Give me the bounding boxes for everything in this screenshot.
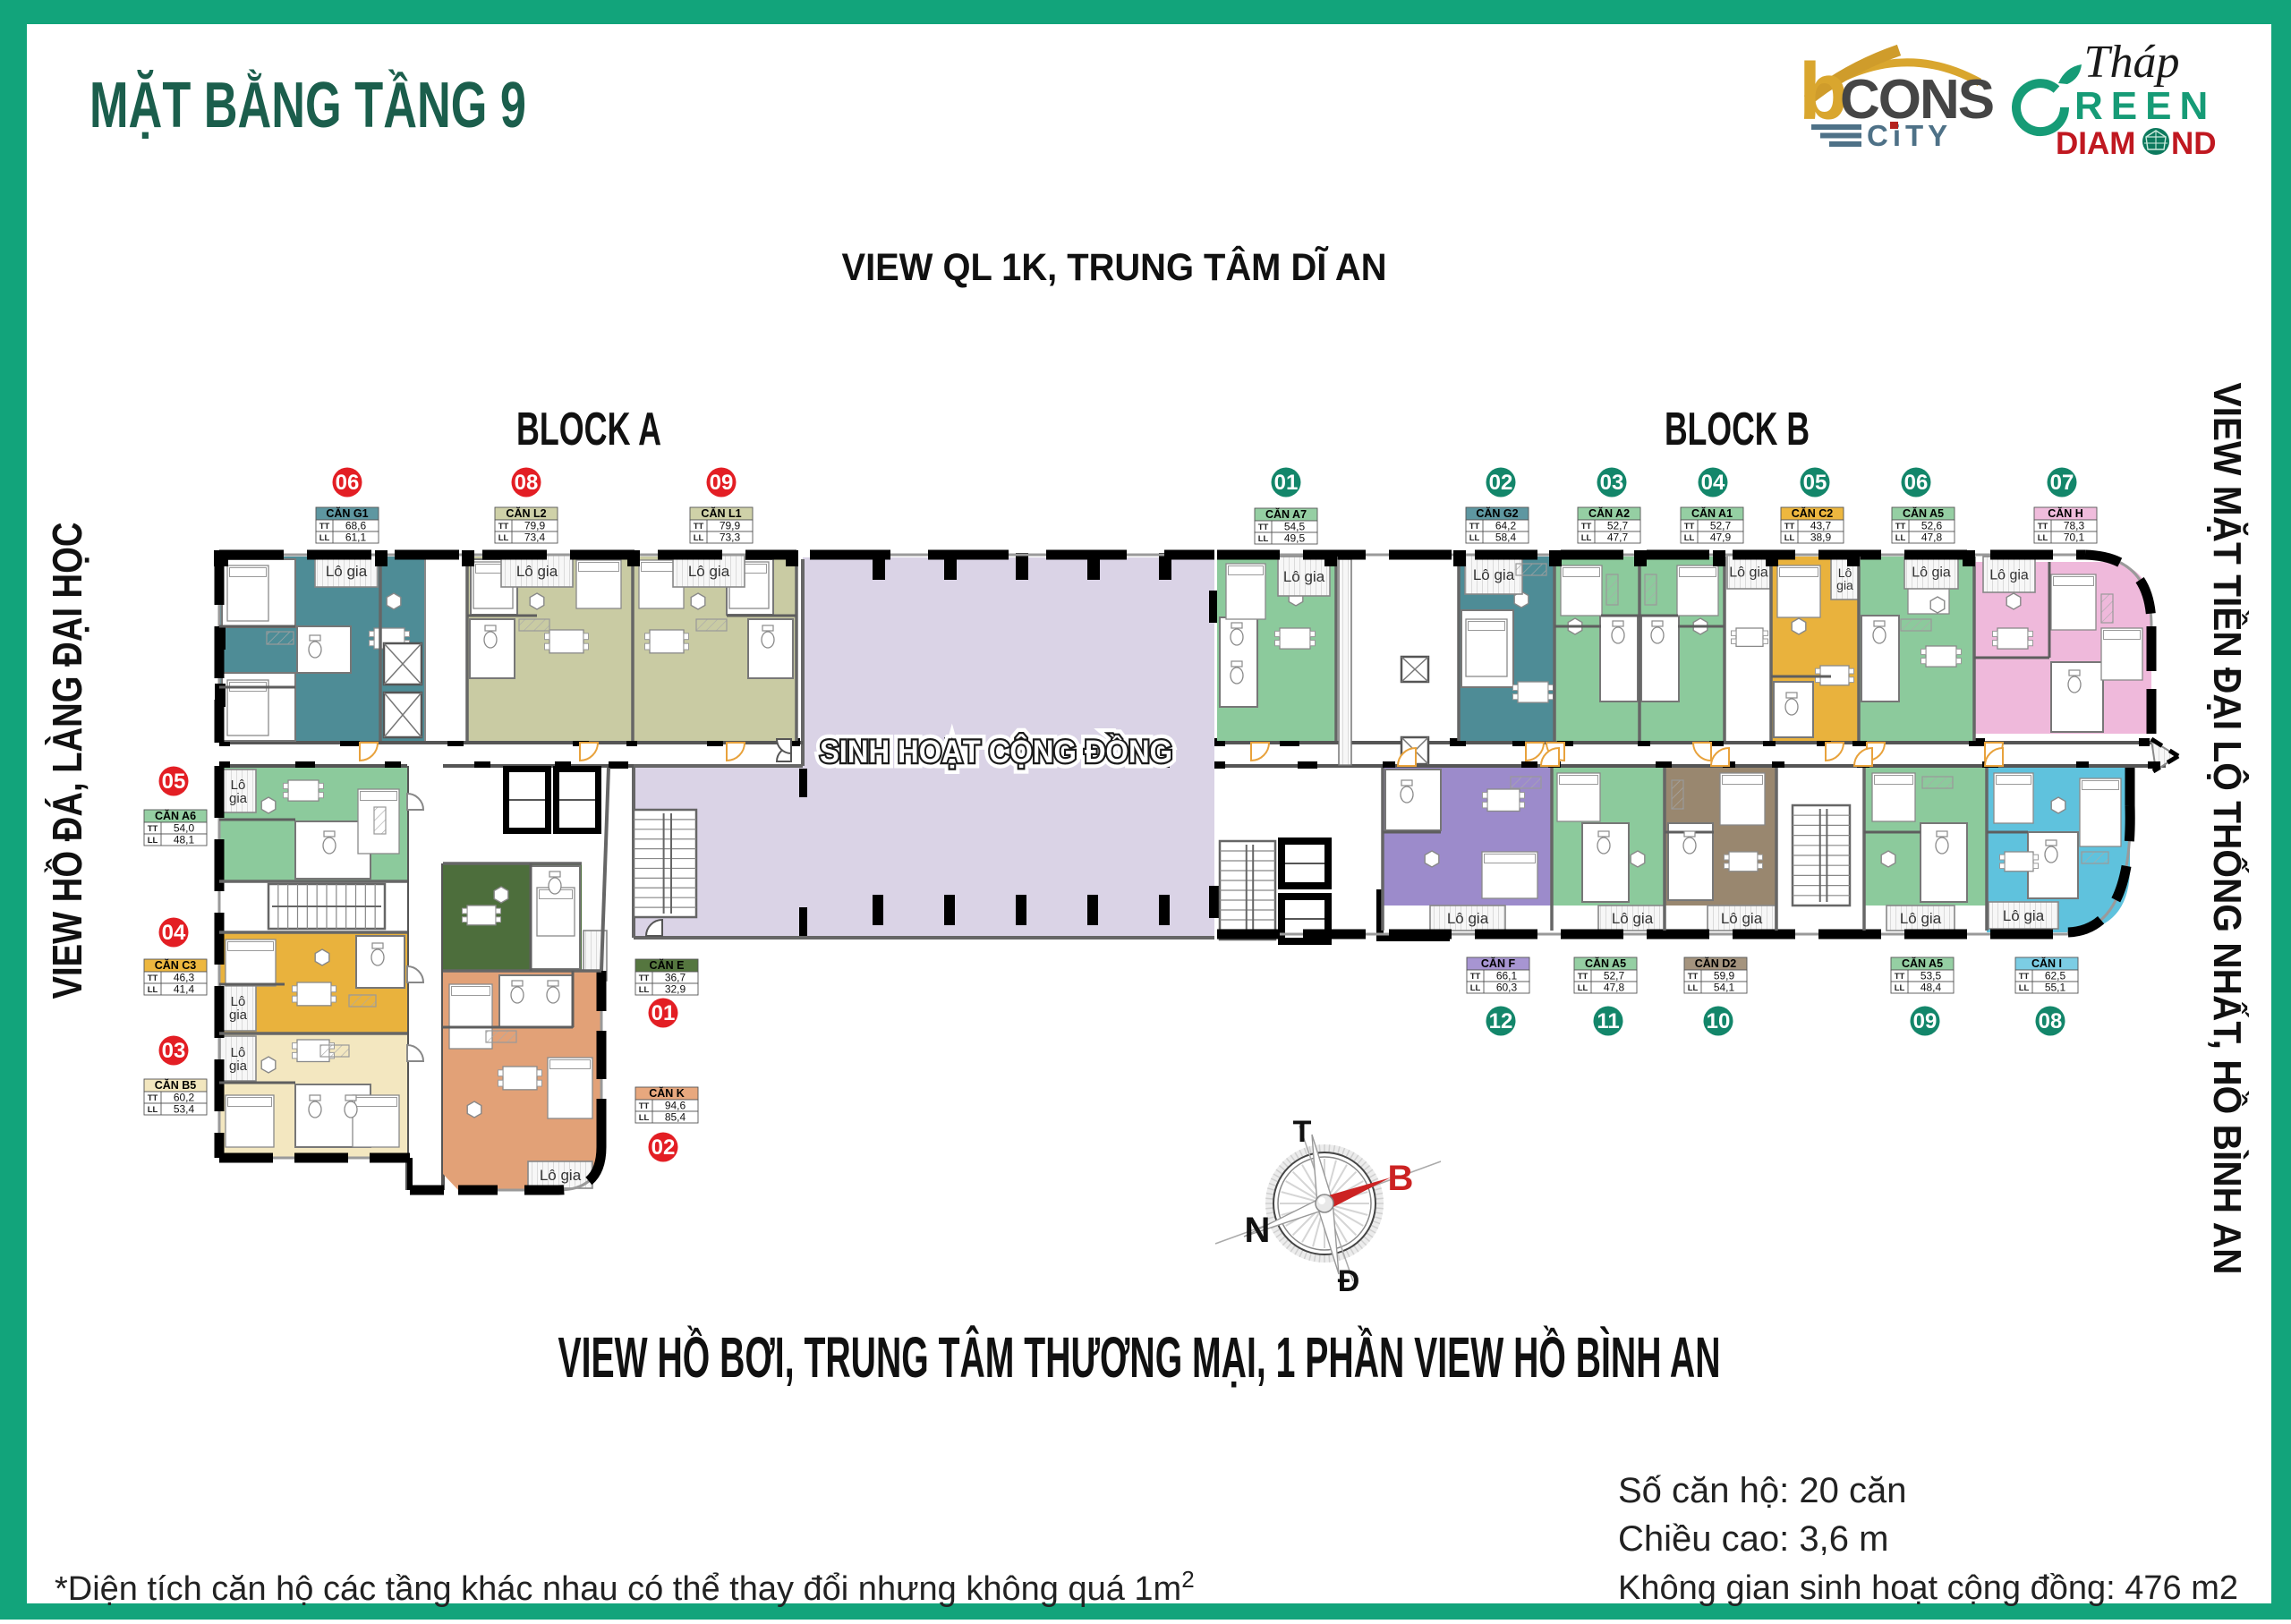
svg-text:10: 10 <box>1707 1009 1731 1033</box>
svg-text:TT: TT <box>148 824 158 834</box>
svg-text:Lôgia: Lôgia <box>229 778 248 806</box>
svg-text:CĂN L2: CĂN L2 <box>506 506 546 520</box>
svg-text:LL: LL <box>498 533 509 543</box>
svg-text:TT: TT <box>2019 972 2030 982</box>
svg-text:LL: LL <box>1469 533 1480 543</box>
svg-text:55,1: 55,1 <box>2045 982 2066 994</box>
svg-text:TT: TT <box>1578 972 1588 982</box>
svg-text:73,4: 73,4 <box>524 531 546 544</box>
svg-text:CĂN A5: CĂN A5 <box>1903 506 1944 520</box>
svg-text:59,9: 59,9 <box>1714 970 1735 982</box>
svg-text:BLOCK B: BLOCK B <box>1665 404 1810 455</box>
svg-text:79,9: 79,9 <box>524 520 546 532</box>
svg-text:54,0: 54,0 <box>174 822 195 835</box>
svg-text:TT: TT <box>2038 522 2048 531</box>
svg-text:08: 08 <box>2039 1009 2063 1033</box>
svg-text:CĂN L1: CĂN L1 <box>701 506 741 520</box>
svg-text:03: 03 <box>162 1039 186 1063</box>
svg-text:08: 08 <box>515 471 539 495</box>
svg-text:CĂN E: CĂN E <box>650 958 685 972</box>
svg-text:47,7: 47,7 <box>1607 531 1629 544</box>
svg-text:52,7: 52,7 <box>1607 520 1629 532</box>
svg-text:Lô gia: Lô gia <box>688 563 730 580</box>
svg-text:LL: LL <box>2019 983 2030 993</box>
svg-text:LL: LL <box>639 1113 650 1123</box>
svg-text:Tháp: Tháp <box>2084 37 2180 88</box>
svg-text:CĂN D2: CĂN D2 <box>1695 957 1737 970</box>
svg-text:05: 05 <box>162 769 186 794</box>
svg-text:43,7: 43,7 <box>1810 520 1832 532</box>
svg-text:07: 07 <box>2050 471 2074 495</box>
svg-text:CĂN C2: CĂN C2 <box>1792 506 1834 520</box>
svg-text:MẶT BẰNG TẦNG 9: MẶT BẰNG TẦNG 9 <box>89 69 526 141</box>
svg-text:52,7: 52,7 <box>1710 520 1732 532</box>
svg-text:TT: TT <box>148 1093 158 1103</box>
svg-text:LL: LL <box>148 985 158 995</box>
svg-text:TT: TT <box>148 974 158 983</box>
svg-text:LL: LL <box>148 1105 158 1115</box>
svg-text:Lôgia: Lôgia <box>229 994 248 1023</box>
svg-text:TT: TT <box>498 522 509 531</box>
svg-text:54,1: 54,1 <box>1714 982 1735 994</box>
svg-text:CĂN A5: CĂN A5 <box>1902 957 1943 970</box>
svg-text:Lô gia: Lô gia <box>1729 565 1768 581</box>
svg-text:TT: TT <box>694 522 704 531</box>
svg-text:B: B <box>1388 1159 1414 1198</box>
svg-text:12: 12 <box>1489 1009 1513 1033</box>
svg-text:78,3: 78,3 <box>2064 520 2085 532</box>
svg-text:60,3: 60,3 <box>1496 982 1518 994</box>
svg-text:Chiều cao: 3,6 m: Chiều cao: 3,6 m <box>1618 1519 1888 1559</box>
svg-text:49,5: 49,5 <box>1284 532 1306 545</box>
svg-text:Không gian sinh hoạt cộng đồng: Không gian sinh hoạt cộng đồng: 476 m2 <box>1618 1569 2238 1607</box>
svg-text:53,4: 53,4 <box>174 1103 195 1116</box>
svg-text:85,4: 85,4 <box>665 1111 686 1124</box>
svg-text:BLOCK A: BLOCK A <box>516 404 661 455</box>
svg-text:LL: LL <box>639 985 650 995</box>
svg-text:CĂN A6: CĂN A6 <box>155 809 196 822</box>
svg-text:53,5: 53,5 <box>1921 970 1942 982</box>
svg-text:TT: TT <box>1258 523 1269 532</box>
svg-text:47,8: 47,8 <box>1604 982 1625 994</box>
svg-text:73,3: 73,3 <box>720 531 741 544</box>
svg-text:Lô gia: Lô gia <box>1721 910 1763 927</box>
svg-text:TT: TT <box>639 1101 650 1111</box>
svg-text:LL: LL <box>1895 533 1906 543</box>
svg-text:36,7: 36,7 <box>665 972 686 984</box>
svg-text:CĂN A2: CĂN A2 <box>1588 506 1630 520</box>
svg-text:06: 06 <box>1904 471 1929 495</box>
svg-text:Lô gia: Lô gia <box>1447 910 1489 927</box>
svg-text:REEN: REEN <box>2074 84 2216 128</box>
svg-text:64,2: 64,2 <box>1495 520 1517 532</box>
svg-text:T: T <box>1293 1115 1312 1149</box>
svg-text:Số căn hộ: 20 căn: Số căn hộ: 20 căn <box>1618 1471 1906 1510</box>
svg-text:Lô gia: Lô gia <box>516 563 558 580</box>
svg-text:CĂN A7: CĂN A7 <box>1265 507 1307 521</box>
svg-text:VIEW MẶT TIỀN ĐẠI LỘ THỐNG NHẤ: VIEW MẶT TIỀN ĐẠI LỘ THỐNG NHẤT, HỒ BÌNH… <box>2205 383 2251 1275</box>
svg-text:79,9: 79,9 <box>720 520 741 532</box>
svg-text:TT: TT <box>1581 522 1592 531</box>
svg-text:LL: LL <box>1581 533 1592 543</box>
svg-text:LL: LL <box>1895 983 1905 993</box>
svg-text:01: 01 <box>1274 471 1299 495</box>
svg-text:CĂN B5: CĂN B5 <box>155 1078 197 1092</box>
svg-text:04: 04 <box>162 921 186 945</box>
svg-text:Lô gia: Lô gia <box>326 563 368 580</box>
svg-text:TT: TT <box>1684 522 1695 531</box>
svg-text:06: 06 <box>336 471 360 495</box>
svg-text:68,6: 68,6 <box>345 520 367 532</box>
svg-text:47,8: 47,8 <box>1921 531 1943 544</box>
svg-text:LL: LL <box>2038 533 2048 543</box>
svg-text:TT: TT <box>1470 972 1481 982</box>
svg-text:02: 02 <box>652 1135 676 1160</box>
svg-text:60,2: 60,2 <box>174 1092 195 1104</box>
svg-text:Lô gia: Lô gia <box>1912 565 1951 581</box>
svg-text:41,4: 41,4 <box>174 983 195 996</box>
svg-text:TT: TT <box>1688 972 1699 982</box>
svg-text:Lô gia: Lô gia <box>540 1167 582 1184</box>
svg-text:38,9: 38,9 <box>1810 531 1832 544</box>
svg-text:Lô gia: Lô gia <box>2003 907 2045 924</box>
svg-text:Đ: Đ <box>1338 1264 1360 1298</box>
svg-text:Lô gia: Lô gia <box>1473 566 1515 583</box>
svg-text:LL: LL <box>694 533 704 543</box>
svg-text:62,5: 62,5 <box>2045 970 2066 982</box>
svg-text:94,6: 94,6 <box>665 1100 686 1112</box>
svg-text:*Diện tích căn hộ các tầng khá: *Diện tích căn hộ các tầng khác nhau có … <box>55 1566 1195 1608</box>
svg-text:04: 04 <box>1701 471 1725 495</box>
svg-text:TT: TT <box>319 522 330 531</box>
svg-text:LL: LL <box>1688 983 1699 993</box>
svg-text:01: 01 <box>652 1001 676 1025</box>
svg-text:61,1: 61,1 <box>345 531 367 544</box>
svg-text:CĂN F: CĂN F <box>1481 957 1516 970</box>
svg-text:47,9: 47,9 <box>1710 531 1732 544</box>
svg-text:CĂN K: CĂN K <box>649 1086 685 1100</box>
svg-text:09: 09 <box>710 471 734 495</box>
svg-text:TT: TT <box>1895 522 1906 531</box>
svg-text:Lô gia: Lô gia <box>1612 910 1654 927</box>
svg-text:CĂN A5: CĂN A5 <box>1585 957 1626 970</box>
svg-text:CiTY: CiTY <box>1867 119 1952 152</box>
svg-text:11: 11 <box>1597 1009 1619 1033</box>
svg-text:VIEW QL 1K, TRUNG TÂM DĨ AN: VIEW QL 1K, TRUNG TÂM DĨ AN <box>842 245 1387 289</box>
svg-text:CĂN G2: CĂN G2 <box>1476 506 1518 520</box>
svg-text:LL: LL <box>148 836 158 846</box>
svg-text:VIEW HỒ ĐÁ, LÀNG ĐẠI HỌC: VIEW HỒ ĐÁ, LÀNG ĐẠI HỌC <box>44 523 90 999</box>
svg-text:LL: LL <box>1684 533 1695 543</box>
svg-text:05: 05 <box>1803 471 1827 495</box>
svg-text:LL: LL <box>1784 533 1795 543</box>
svg-text:66,1: 66,1 <box>1496 970 1518 982</box>
svg-text:Lô gia: Lô gia <box>1989 568 2029 583</box>
svg-text:VIEW HỒ BƠI, TRUNG TÂM THƯƠNG: VIEW HỒ BƠI, TRUNG TÂM THƯƠNG MẠI, 1 PHẦ… <box>558 1324 1721 1390</box>
svg-text:TT: TT <box>1469 522 1480 531</box>
svg-text:CĂN G1: CĂN G1 <box>326 506 368 520</box>
svg-text:ND: ND <box>2171 126 2217 161</box>
svg-text:46,3: 46,3 <box>174 972 195 984</box>
svg-text:Lô gia: Lô gia <box>1283 568 1325 585</box>
svg-text:09: 09 <box>1913 1009 1938 1033</box>
svg-text:58,4: 58,4 <box>1495 531 1517 544</box>
svg-text:Lô gia: Lô gia <box>1900 910 1942 927</box>
svg-text:CĂN A1: CĂN A1 <box>1691 506 1733 520</box>
svg-text:DIAM: DIAM <box>2056 126 2135 161</box>
svg-text:48,4: 48,4 <box>1921 982 1942 994</box>
svg-text:TT: TT <box>1895 972 1905 982</box>
svg-text:CĂN I: CĂN I <box>2031 957 2062 970</box>
svg-text:LL: LL <box>1578 983 1588 993</box>
svg-text:48,1: 48,1 <box>174 834 195 846</box>
svg-text:TT: TT <box>639 974 650 983</box>
svg-text:54,5: 54,5 <box>1284 521 1306 533</box>
svg-text:CĂN C3: CĂN C3 <box>155 958 197 972</box>
svg-text:gia: gia <box>1836 578 1853 592</box>
svg-text:CĂN H: CĂN H <box>2048 506 2083 520</box>
svg-text:N: N <box>1245 1211 1271 1250</box>
svg-text:LL: LL <box>1258 534 1269 544</box>
svg-text:70,1: 70,1 <box>2064 531 2085 544</box>
svg-text:32,9: 32,9 <box>665 983 686 996</box>
svg-text:52,6: 52,6 <box>1921 520 1943 532</box>
svg-text:Lôgia: Lôgia <box>229 1045 248 1074</box>
svg-text:LL: LL <box>1470 983 1481 993</box>
svg-text:02: 02 <box>1489 471 1513 495</box>
svg-text:03: 03 <box>1600 471 1624 495</box>
svg-text:LL: LL <box>319 533 330 543</box>
svg-text:TT: TT <box>1784 522 1795 531</box>
svg-text:52,7: 52,7 <box>1604 970 1625 982</box>
svg-text:SINH HOẠT CỘNG ĐỒNG: SINH HOẠT CỘNG ĐỒNG <box>820 734 1172 769</box>
